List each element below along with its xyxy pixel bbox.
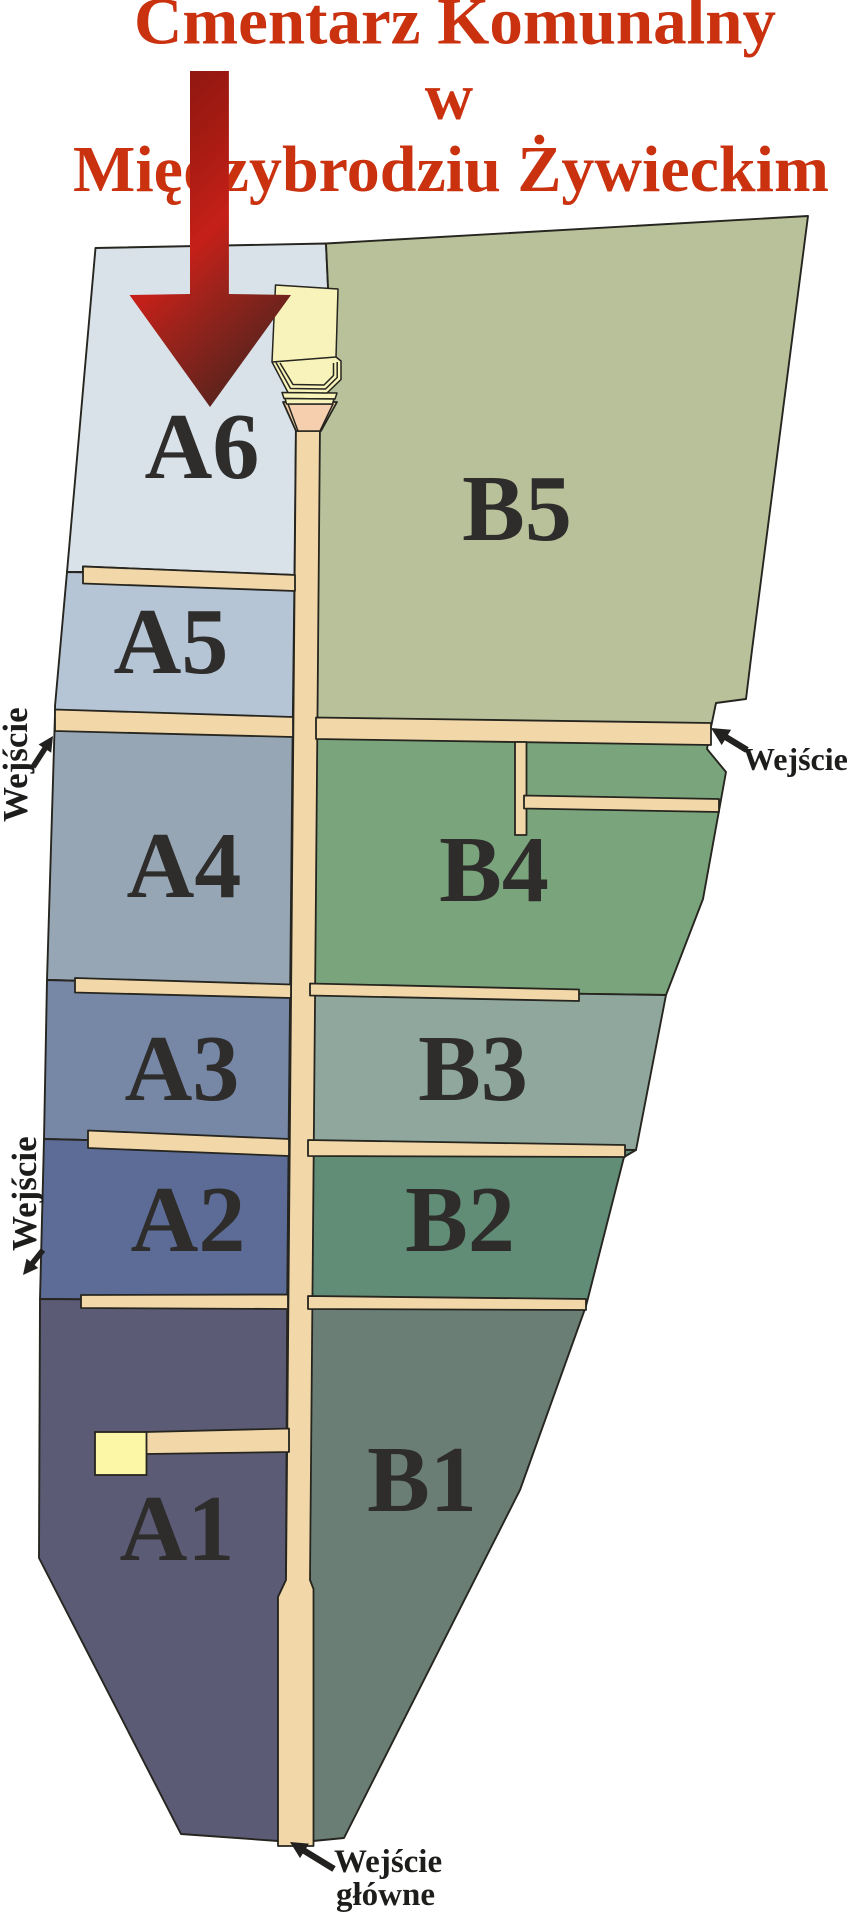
svg-text:A3: A3 (125, 1017, 240, 1121)
svg-text:B2: B2 (405, 1168, 515, 1272)
svg-text:główne: główne (336, 1877, 435, 1913)
svg-text:A2: A2 (131, 1168, 246, 1272)
svg-text:Wejście: Wejście (0, 707, 35, 822)
svg-text:Wejście: Wejście (743, 741, 848, 777)
svg-text:Wejście: Wejście (334, 1844, 442, 1880)
svg-text:B3: B3 (418, 1017, 528, 1121)
svg-text:B1: B1 (367, 1428, 477, 1532)
svg-text:A4: A4 (127, 814, 242, 918)
svg-text:A1: A1 (120, 1477, 235, 1581)
svg-text:Wejście: Wejście (5, 1136, 44, 1251)
svg-text:B4: B4 (439, 818, 549, 922)
svg-text:Cmentarz Komunalny: Cmentarz Komunalny (134, 0, 776, 59)
svg-text:Międzybrodziu Żywieckim: Międzybrodziu Żywieckim (73, 133, 829, 206)
svg-text:A5: A5 (114, 590, 229, 694)
svg-text:A6: A6 (145, 395, 260, 499)
svg-text:w: w (425, 60, 474, 134)
svg-text:B5: B5 (462, 457, 572, 561)
